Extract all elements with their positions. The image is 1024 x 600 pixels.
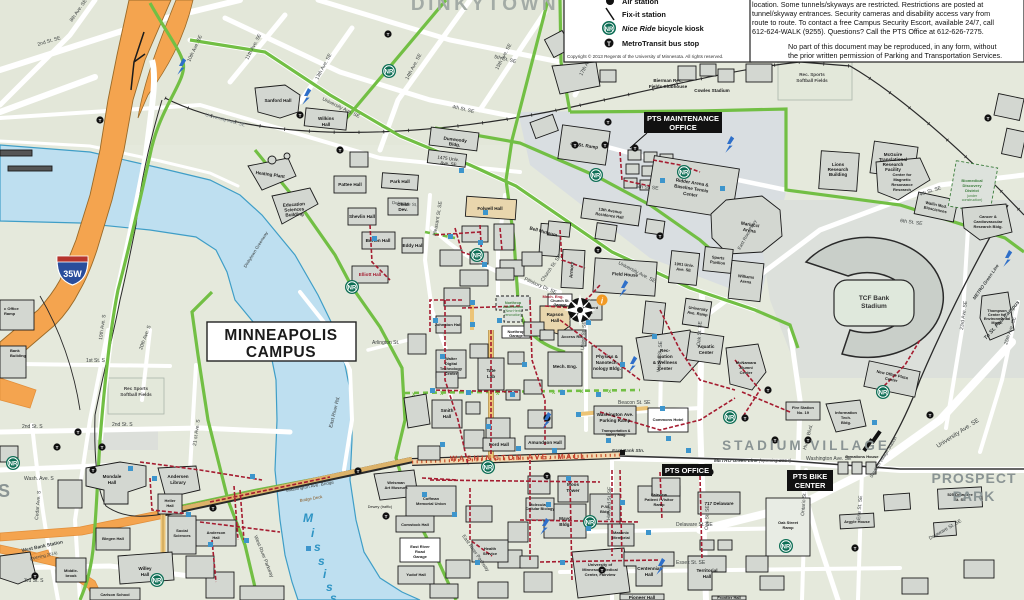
svg-text:Fix-it station: Fix-it station — [622, 10, 666, 19]
svg-text:Hall: Hall — [322, 122, 330, 127]
svg-text:Softball Fields: Softball Fields — [796, 78, 828, 83]
svg-text:T: T — [546, 474, 549, 479]
svg-text:Building: Building — [10, 353, 27, 358]
svg-text:Hall: Hall — [166, 503, 173, 508]
svg-text:Physics &: Physics & — [596, 354, 619, 359]
svg-text:Burton Hall: Burton Hall — [366, 238, 391, 243]
svg-text:Smith: Smith — [441, 408, 454, 413]
svg-text:T: T — [212, 506, 215, 511]
svg-text:Ford Hall: Ford Hall — [489, 442, 509, 447]
svg-text:Service: Service — [483, 551, 498, 556]
svg-text:NR: NR — [680, 171, 689, 177]
svg-text:Frontier Hall: Frontier Hall — [717, 595, 741, 600]
svg-text:Air station: Air station — [622, 0, 659, 6]
svg-text:Dewey (traffic): Dewey (traffic) — [368, 505, 393, 509]
svg-text:NR: NR — [484, 466, 493, 472]
svg-text:Center: Center — [445, 371, 458, 376]
svg-text:Hall: Hall — [551, 318, 559, 323]
svg-text:Eddy Hall: Eddy Hall — [403, 243, 424, 248]
svg-text:Garage: Garage — [553, 303, 566, 307]
svg-text:NR: NR — [9, 462, 18, 468]
svg-text:Memorial Union: Memorial Union — [416, 501, 447, 506]
svg-text:T: T — [299, 113, 302, 118]
svg-text:District: District — [965, 188, 979, 193]
svg-text:T: T — [767, 388, 770, 393]
svg-text:the prior written permission o: the prior written permission of Parking … — [788, 51, 1002, 60]
svg-text:Comstock Hall: Comstock Hall — [401, 522, 429, 527]
svg-text:Dev.: Dev. — [398, 207, 407, 212]
svg-text:Beacon St. SE: Beacon St. SE — [618, 400, 651, 406]
svg-text:T: T — [929, 413, 932, 418]
svg-text:STADIUM VILLAGE: STADIUM VILLAGE — [722, 438, 890, 453]
svg-text:s: s — [314, 540, 321, 554]
svg-text:T: T — [854, 546, 857, 551]
svg-text:Essex St. SE: Essex St. SE — [676, 560, 706, 566]
svg-text:Mayo: Mayo — [559, 516, 571, 521]
svg-text:Softball Fields: Softball Fields — [120, 392, 152, 397]
svg-text:T: T — [607, 41, 611, 48]
svg-text:Mech. Eng.: Mech. Eng. — [542, 294, 563, 299]
svg-text:T: T — [387, 32, 390, 37]
svg-text:Center: Center — [740, 370, 753, 375]
svg-text:Hall: Hall — [212, 535, 219, 540]
svg-text:Fields Clubhouse: Fields Clubhouse — [649, 84, 688, 89]
svg-text:Amundson Hall: Amundson Hall — [528, 440, 562, 445]
svg-text:s: s — [318, 554, 325, 568]
svg-text:Sciences: Sciences — [173, 533, 191, 538]
svg-text:Ramp: Ramp — [782, 525, 794, 530]
svg-text:Aquatic: Aquatic — [698, 344, 715, 349]
svg-text:T: T — [597, 248, 600, 253]
svg-text:Center: Center — [699, 350, 714, 355]
svg-text:Mgmt.: Mgmt. — [991, 321, 1002, 325]
svg-text:Center: Center — [658, 366, 673, 371]
svg-text:Nanotech-: Nanotech- — [596, 360, 619, 365]
svg-text:tunnel/skyway entrances. Secu: tunnel/skyway entrances. Security camera… — [752, 9, 990, 18]
svg-text:Garage: Garage — [413, 554, 428, 559]
svg-text:renovation): renovation) — [505, 313, 522, 317]
svg-text:Tower: Tower — [566, 488, 579, 493]
svg-text:Art Museum: Art Museum — [384, 485, 408, 490]
svg-text:NR: NR — [782, 545, 791, 551]
svg-text:Park Hall: Park Hall — [390, 179, 410, 184]
svg-text:T: T — [34, 574, 37, 579]
svg-text:Parking Ramp: Parking Ramp — [600, 418, 631, 423]
svg-text:Copyright © 2013 Regents of th: Copyright © 2013 Regents of the Universi… — [567, 53, 723, 59]
svg-text:Carlson School: Carlson School — [100, 592, 129, 597]
svg-text:T: T — [607, 120, 610, 125]
svg-text:route to route. To contact a: route to route. To contact a free Campus… — [752, 18, 994, 27]
svg-text:Centennial: Centennial — [637, 566, 660, 571]
svg-text:& Wellness: & Wellness — [653, 360, 678, 365]
svg-text:T: T — [659, 234, 662, 239]
svg-text:NR: NR — [348, 286, 357, 292]
svg-text:Lab: Lab — [487, 374, 495, 379]
svg-text:nology Bldg.: nology Bldg. — [593, 366, 621, 371]
svg-text:MINNEAPOLIS: MINNEAPOLIS — [224, 327, 337, 344]
svg-text:Pattee Hall: Pattee Hall — [338, 182, 362, 187]
svg-text:MetroTransit bus stop: MetroTransit bus stop — [622, 39, 700, 48]
svg-text:TCF Bank: TCF Bank — [859, 295, 890, 302]
svg-text:T: T — [339, 148, 342, 153]
svg-text:Arlington St.: Arlington St. — [372, 340, 399, 346]
svg-text:CAMPUS: CAMPUS — [246, 344, 316, 361]
svg-text:T: T — [77, 430, 80, 435]
svg-text:Hall: Hall — [703, 574, 711, 579]
svg-text:NR: NR — [726, 416, 735, 422]
svg-text:Cellular Biology: Cellular Biology — [526, 507, 556, 511]
svg-text:Mech. Eng.: Mech. Eng. — [553, 364, 577, 369]
svg-text:Sanford Hall: Sanford Hall — [264, 98, 291, 103]
svg-text:Bldg.: Bldg. — [841, 420, 851, 425]
svg-text:NR: NR — [879, 391, 888, 397]
svg-text:NR: NR — [385, 70, 394, 76]
svg-text:No. 19: No. 19 — [797, 410, 810, 415]
svg-text:Memorial: Memorial — [612, 535, 630, 540]
svg-text:35W: 35W — [63, 269, 82, 279]
svg-text:Blegen Hall: Blegen Hall — [102, 536, 124, 541]
svg-text:Research: Research — [893, 187, 912, 192]
svg-text:Rec-: Rec- — [660, 348, 670, 353]
svg-text:T: T — [634, 146, 637, 151]
svg-text:Territorial: Territorial — [696, 568, 717, 573]
svg-text:Moos: Moos — [567, 482, 579, 487]
svg-text:Andersen: Andersen — [167, 474, 188, 479]
svg-text:METRO Green Line (opening 2014: METRO Green Line (opening 2014) — [714, 458, 792, 464]
svg-text:2nd St. S: 2nd St. S — [112, 422, 133, 428]
svg-text:Rapson: Rapson — [547, 312, 564, 317]
svg-text:M: M — [303, 511, 314, 525]
svg-text:Shevlin Hall: Shevlin Hall — [349, 214, 375, 219]
svg-text:Ramp: Ramp — [4, 311, 16, 316]
svg-text:T: T — [574, 143, 577, 148]
svg-text:Library: Library — [170, 480, 186, 485]
svg-text:Willey: Willey — [138, 566, 152, 571]
svg-text:Safety Bldg.: Safety Bldg. — [606, 433, 627, 437]
svg-text:PTS BIKE: PTS BIKE — [793, 472, 828, 481]
svg-text:717 Delaware: 717 Delaware — [704, 501, 734, 506]
svg-text:T: T — [385, 514, 388, 519]
svg-text:Hall: Hall — [141, 572, 149, 577]
svg-text:NR: NR — [592, 174, 601, 180]
svg-text:NR: NR — [473, 254, 482, 260]
svg-text:Rec. Sports: Rec. Sports — [799, 72, 825, 77]
svg-text:construction): construction) — [962, 198, 983, 202]
svg-text:Harvard St. SE: Harvard St. SE — [606, 486, 613, 520]
svg-text:Cowles Stadium: Cowles Stadium — [694, 88, 729, 93]
svg-text:Wash. Ave. S: Wash. Ave. S — [24, 476, 54, 482]
svg-text:Stadium: Stadium — [861, 303, 887, 310]
svg-text:612-624-WALK (9255). Question: 612-624-WALK (9255). Questions? Call the… — [752, 27, 984, 36]
svg-text:Bldg.: Bldg. — [600, 509, 610, 514]
svg-text:T: T — [101, 445, 104, 450]
svg-text:location. Some tunnels/skyway: location. Some tunnels/skyways are restr… — [752, 0, 983, 9]
svg-text:Hall: Hall — [645, 572, 653, 577]
svg-text:PTS MAINTENANCE: PTS MAINTENANCE — [647, 114, 719, 123]
svg-text:S: S — [0, 481, 12, 501]
svg-text:OFFICE: OFFICE — [669, 123, 697, 132]
svg-text:NR: NR — [605, 27, 614, 33]
svg-text:T: T — [604, 143, 607, 148]
svg-text:Building: Building — [829, 172, 848, 177]
svg-text:T: T — [744, 416, 747, 421]
svg-text:Yudof Hall: Yudof Hall — [406, 572, 426, 577]
svg-text:Access Rd.: Access Rd. — [561, 334, 583, 339]
svg-text:s: s — [330, 591, 337, 600]
svg-text:PROSPECT: PROSPECT — [931, 470, 1016, 486]
svg-text:DINKYTOWN: DINKYTOWN — [411, 0, 559, 15]
svg-text:brook: brook — [65, 573, 77, 578]
svg-text:East Bank Stn.: East Bank Stn. — [612, 448, 644, 453]
svg-text:PTS OFFICE: PTS OFFICE — [665, 466, 709, 475]
svg-text:Tate: Tate — [486, 368, 496, 373]
svg-text:T: T — [601, 568, 604, 573]
svg-text:T: T — [357, 469, 360, 474]
svg-text:T: T — [99, 118, 102, 123]
svg-text:NR: NR — [153, 579, 162, 585]
svg-text:T: T — [987, 116, 990, 121]
svg-text:reation: reation — [657, 354, 673, 359]
svg-text:Folwell Hall: Folwell Hall — [477, 206, 502, 211]
svg-text:Elliott Hall: Elliott Hall — [359, 272, 381, 277]
svg-text:Mondale: Mondale — [103, 474, 122, 479]
svg-text:Ramp: Ramp — [653, 502, 665, 507]
svg-text:Garage: Garage — [509, 333, 524, 338]
svg-text:1st St. S: 1st St. S — [86, 358, 106, 364]
svg-text:Pioneer Hall: Pioneer Hall — [629, 595, 656, 600]
svg-text:CENTER: CENTER — [795, 481, 826, 490]
svg-text:NR: NR — [586, 521, 595, 527]
svg-text:Bldg.: Bldg. — [559, 522, 570, 527]
svg-text:Argyle House: Argyle House — [844, 519, 871, 524]
svg-text:Hall: Hall — [108, 480, 116, 485]
svg-text:Research Bldg.: Research Bldg. — [973, 224, 1002, 229]
svg-text:No part of this document may b: No part of this document may be reproduc… — [788, 42, 997, 51]
svg-text:T: T — [56, 445, 59, 450]
svg-text:Johnston Hall: Johnston Hall — [435, 322, 461, 327]
svg-text:Donations House: Donations House — [846, 454, 880, 459]
svg-text:PARK: PARK — [953, 488, 996, 504]
svg-text:Delaware St. SE: Delaware St. SE — [676, 522, 713, 528]
svg-text:Nice Ride bicycle kiosk: Nice Ride bicycle kiosk — [622, 24, 705, 33]
svg-text:T: T — [92, 468, 95, 473]
svg-text:2nd St. S: 2nd St. S — [22, 424, 43, 430]
svg-text:Bierman Rec.: Bierman Rec. — [653, 78, 682, 83]
svg-text:Rec Sports: Rec Sports — [124, 386, 149, 391]
svg-text:Washington Ave.: Washington Ave. — [597, 412, 634, 417]
svg-text:Hall: Hall — [443, 414, 451, 419]
svg-text:Wilkins: Wilkins — [318, 116, 334, 121]
svg-text:Commons Hotel: Commons Hotel — [653, 417, 684, 422]
